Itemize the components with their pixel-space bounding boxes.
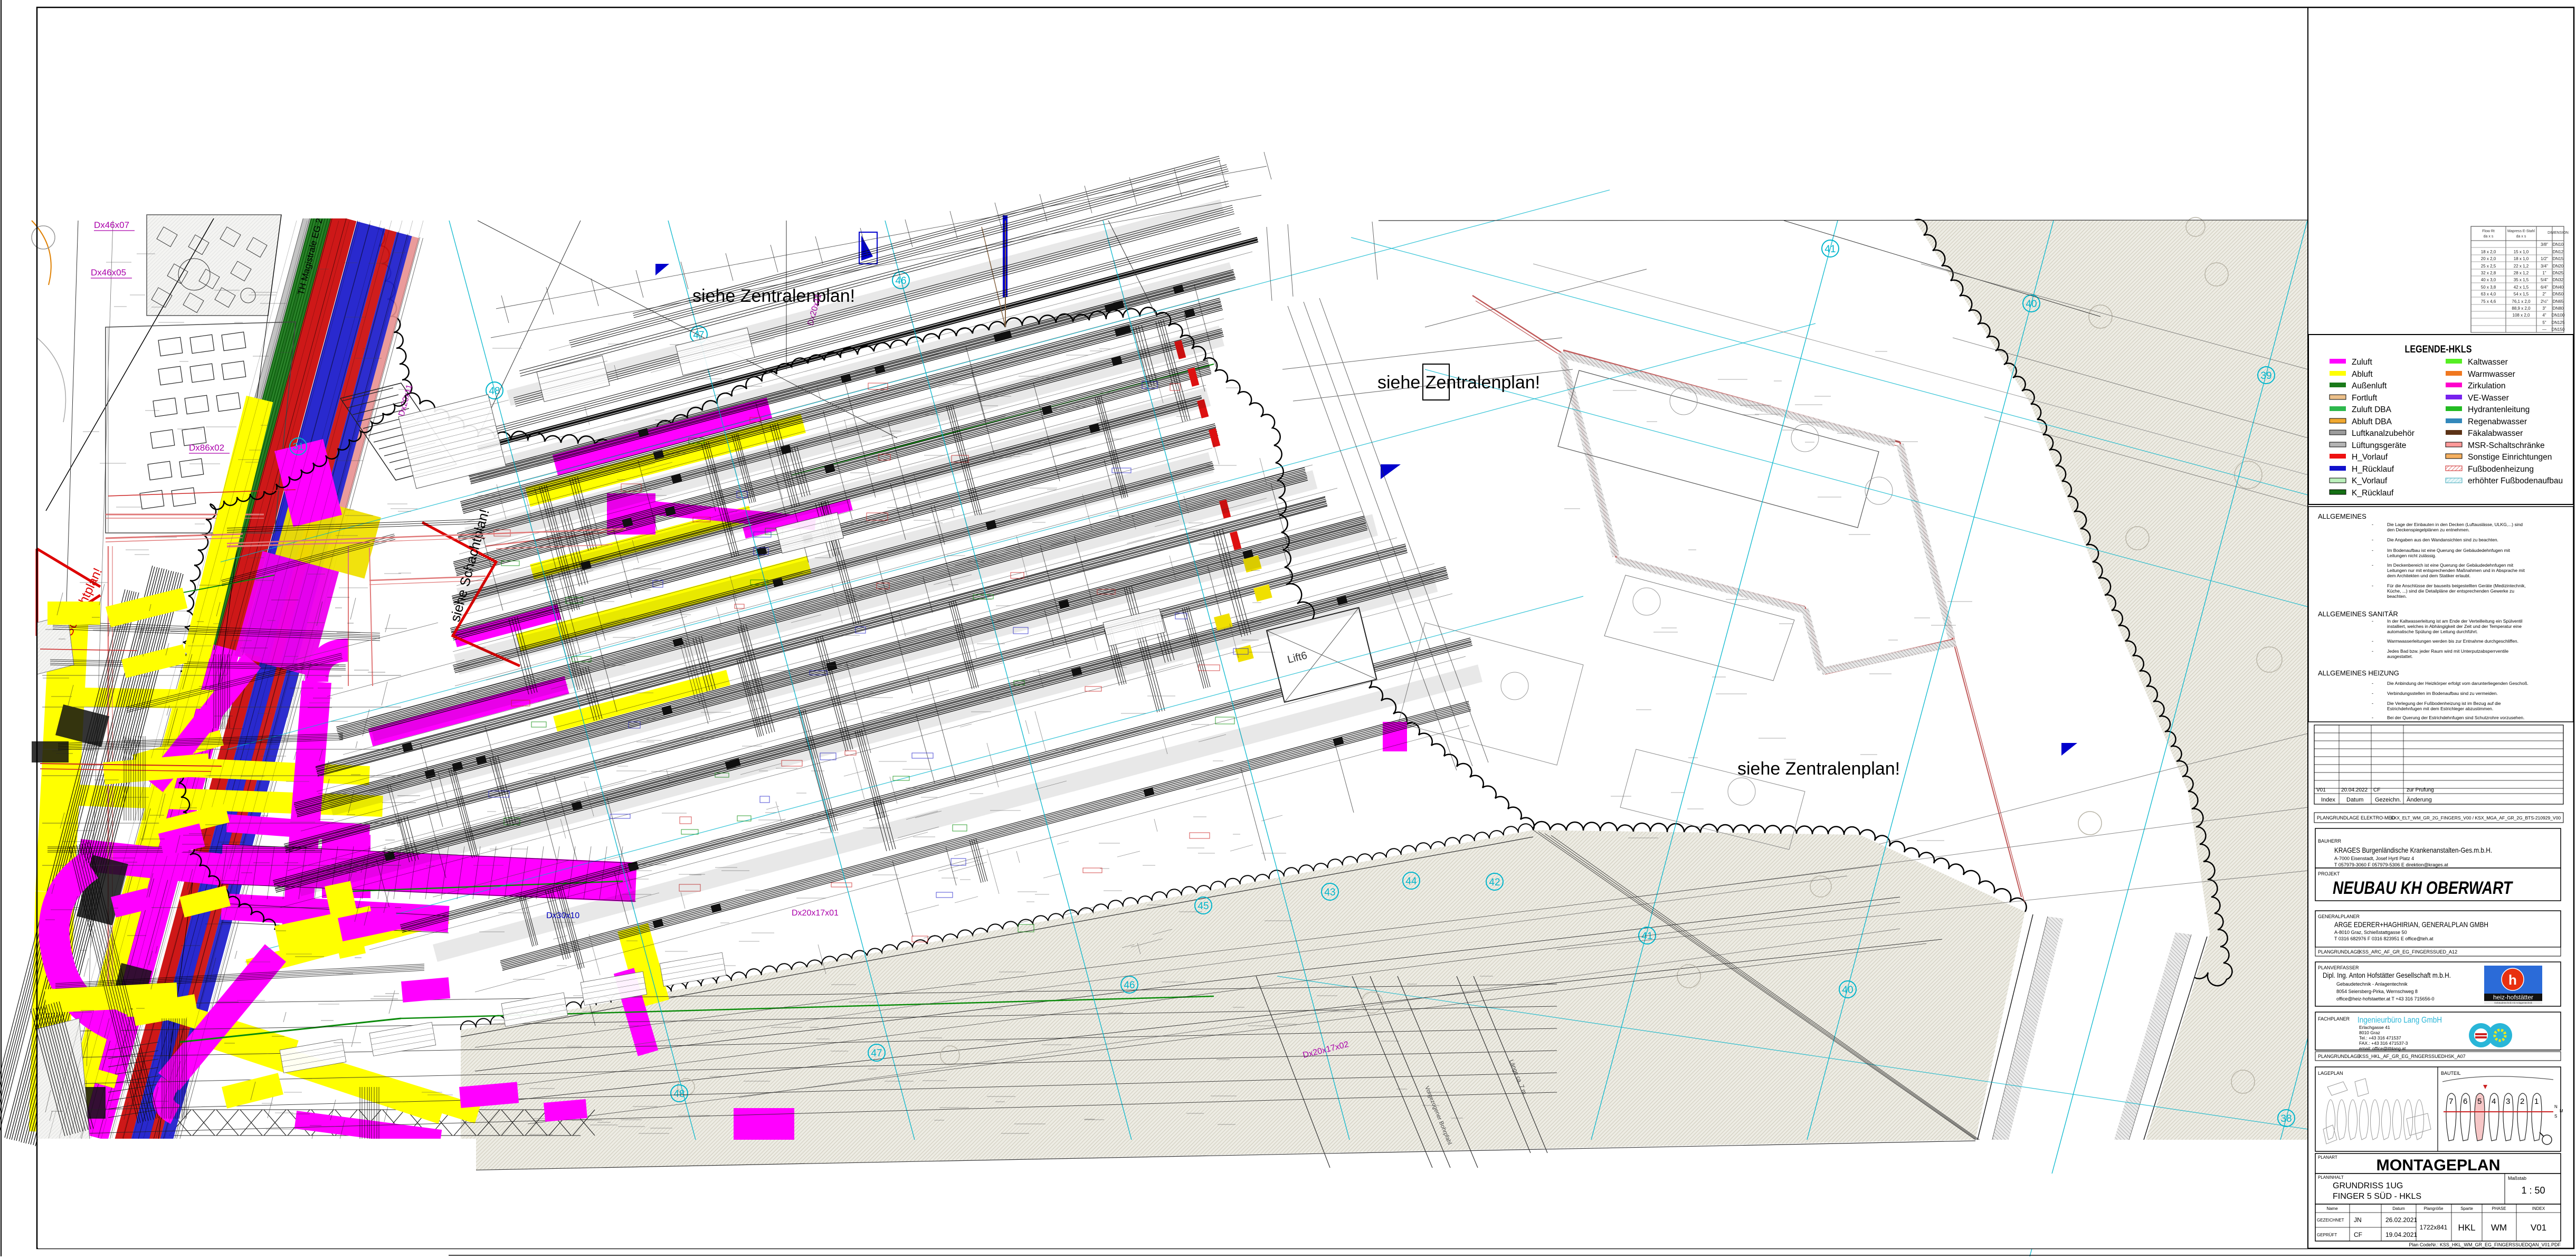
svg-text:48: 48 xyxy=(489,386,500,397)
svg-text:GENERALPLANER: GENERALPLANER xyxy=(2318,914,2360,919)
svg-text:PLANINHALT: PLANINHALT xyxy=(2318,1175,2344,1180)
svg-text:Hydrantenleitung: Hydrantenleitung xyxy=(2468,405,2530,414)
svg-text:Warmwasser: Warmwasser xyxy=(2468,370,2515,379)
svg-text:Erlachgasse: Erlachgasse 41 xyxy=(2359,1025,2390,1030)
svg-text:Fäkalabwasser: Fäkalabwasser xyxy=(2468,429,2523,438)
svg-text:KSS_HKL_AF_GR_EG_RNGERSSUEDHSK: KSS_HKL_AF_GR_EG_RNGERSSUEDHSK_A07 xyxy=(2359,1054,2466,1059)
svg-text:Datum: Datum xyxy=(2392,1206,2405,1211)
svg-text:ALLGEMEINES: ALLGEMEINES xyxy=(2318,512,2366,520)
svg-text:Kaltwasser: Kaltwasser xyxy=(2468,358,2508,367)
svg-text:47: 47 xyxy=(871,1048,882,1059)
svg-text:Fortluft: Fortluft xyxy=(2352,394,2378,403)
svg-text:-: - xyxy=(2372,701,2373,706)
svg-text:22 x 1,2: 22 x 1,2 xyxy=(2514,264,2529,269)
svg-text:ALLGEMEINES HEIZUNG: ALLGEMEINES HEIZUNG xyxy=(2318,669,2399,677)
svg-text:ausgestattet.: ausgestattet. xyxy=(2387,654,2413,659)
svg-text:KSS_ARC_AF_GR_EG_FINGERSSUED_A: KSS_ARC_AF_GR_EG_FINGERSSUED_A12 xyxy=(2359,949,2457,955)
svg-text:-: - xyxy=(2372,618,2373,624)
svg-text:-: - xyxy=(2372,537,2373,542)
svg-text:dem Architekten und dem Statik: dem Architekten und dem Statiker erlaubt… xyxy=(2387,573,2470,578)
svg-text:PROJEKT: PROJEKT xyxy=(2318,871,2340,876)
svg-text:1722x841: 1722x841 xyxy=(2420,1224,2448,1231)
svg-text:Ingenieurbüro Lang GmbH: Ingenieurbüro Lang GmbH xyxy=(2358,1016,2442,1025)
svg-text:GEPRÜFT: GEPRÜFT xyxy=(2317,1233,2337,1237)
svg-text:18 x 1,0: 18 x 1,0 xyxy=(2514,256,2529,261)
svg-text:Abluft: Abluft xyxy=(2352,370,2373,379)
svg-text:Warmwasserleitungen werden bis: Warmwasserleitungen werden bis zur Entna… xyxy=(2387,638,2518,644)
svg-text:40: 40 xyxy=(2026,299,2037,310)
svg-text:48: 48 xyxy=(673,1089,685,1100)
svg-text:JN: JN xyxy=(2354,1216,2362,1224)
svg-text:GRUNDRISS 1UG: GRUNDRISS 1UG xyxy=(2333,1181,2403,1190)
svg-text:den Deckenspiegelplänen zu ent: den Deckenspiegelplänen zu entnehmen. xyxy=(2387,527,2469,532)
svg-text:32 x 2,8: 32 x 2,8 xyxy=(2481,271,2496,275)
svg-text:3: 3 xyxy=(2506,1097,2510,1106)
svg-text:26.02.2021: 26.02.2021 xyxy=(2385,1216,2417,1224)
svg-text:3": 3" xyxy=(2542,306,2546,311)
svg-text:In der Kaltwasserleitung ist a: In der Kaltwasserleitung ist am Ende der… xyxy=(2387,618,2523,624)
svg-text:installiert, welches in Abhäng: installiert, welches in Abhängigkeit der… xyxy=(2387,624,2522,629)
svg-text:zur Prufung: zur Prufung xyxy=(2407,787,2434,793)
svg-text:40 x 3,0: 40 x 3,0 xyxy=(2481,278,2496,282)
svg-text:DN20: DN20 xyxy=(2553,264,2564,269)
svg-text:VE-Wasser: VE-Wasser xyxy=(2468,394,2509,403)
svg-text:31: 31 xyxy=(292,442,303,453)
svg-text:ALLGEMEINES SANITÄR: ALLGEMEINES SANITÄR xyxy=(2318,610,2398,618)
svg-text:25 x 2,5: 25 x 2,5 xyxy=(2481,264,2496,269)
svg-text:Maßstab: Maßstab xyxy=(2508,1176,2526,1181)
svg-text:Küche, ...) sind die Detailplä: Küche, ...) sind die Detailpläne der ent… xyxy=(2387,588,2514,594)
svg-text:Gebäudetechnik mit Anlagentech: Gebäudetechnik mit Anlagentechnik xyxy=(2494,1002,2533,1004)
svg-text:44: 44 xyxy=(1405,876,1417,887)
svg-text:50 x 3,8: 50 x 3,8 xyxy=(2481,285,2496,290)
svg-text:43: 43 xyxy=(1324,887,1335,898)
svg-text:8010: 8010 Graz xyxy=(2359,1030,2380,1035)
svg-text:LEGENDE-HKLS: LEGENDE-HKLS xyxy=(2405,344,2472,355)
svg-text:75 x 4,6: 75 x 4,6 xyxy=(2481,299,2496,304)
svg-text:INDEX: INDEX xyxy=(2532,1206,2545,1211)
svg-text:Plan CodeNr.: KSS_HKL_WM_GR_EG: Plan CodeNr.: KSS_HKL_WM_GR_EG_FINGERSSU… xyxy=(2409,1242,2561,1247)
svg-text:HKL: HKL xyxy=(2458,1223,2475,1233)
svg-text:41: 41 xyxy=(1824,244,1836,255)
svg-text:PLANGRUNDLAGE: PLANGRUNDLAGE xyxy=(2318,949,2361,955)
svg-text:18 x 2,0: 18 x 2,0 xyxy=(2481,250,2496,254)
svg-text:Luftkanalzubehör: Luftkanalzubehör xyxy=(2352,429,2415,438)
svg-text:Index: Index xyxy=(2321,797,2335,803)
svg-text:Sparte: Sparte xyxy=(2460,1206,2473,1211)
svg-text:Name: Name xyxy=(2326,1206,2338,1211)
svg-text:FAX.: +43 316 471537-3: FAX.: +43 316 471537-3 xyxy=(2359,1041,2408,1046)
svg-text:Estrichdehnfugen mit dem Estri: Estrichdehnfugen mit dem Estrichleger ab… xyxy=(2387,706,2493,711)
svg-text:Dx46x07: Dx46x07 xyxy=(94,220,129,230)
svg-text:Gebaudetechnik - Anlagentechni: Gebaudetechnik - Anlagentechnik xyxy=(2336,981,2408,987)
svg-text:da x s: da x s xyxy=(2516,235,2526,239)
svg-text:MONTAGEPLAN: MONTAGEPLAN xyxy=(2377,1157,2501,1174)
svg-text:4": 4" xyxy=(2542,313,2546,318)
svg-text:Abluft DBA: Abluft DBA xyxy=(2352,417,2392,426)
svg-text:Dipl. Ing. Anton Hofstätter Ge: Dipl. Ing. Anton Hofstätter Gesellschaft… xyxy=(2323,971,2451,979)
svg-text:-: - xyxy=(2372,522,2373,527)
svg-text:20.04.2022: 20.04.2022 xyxy=(2341,787,2368,793)
svg-text:ARGE EDERER+HAGHIRIAN, GENERAL: ARGE EDERER+HAGHIRIAN, GENERALPLAN GMBH xyxy=(2334,920,2488,929)
svg-text:CF: CF xyxy=(2373,787,2380,793)
svg-text:siehe Zentralenplan!: siehe Zentralenplan! xyxy=(1737,759,1900,779)
svg-text:45: 45 xyxy=(1197,901,1209,912)
svg-text:2: 2 xyxy=(2520,1097,2524,1106)
svg-text:5": 5" xyxy=(2542,320,2546,325)
svg-text:Verbindungsstellen im Bodenauf: Verbindungsstellen im Bodenaufbau sind z… xyxy=(2387,691,2498,696)
svg-text:Leitungen nur mit entsprechend: Leitungen nur mit entsprechenden Maßnahm… xyxy=(2387,568,2525,573)
svg-text:Jedes Bad bzw. jeder Raum wird: Jedes Bad bzw. jeder Raum wird mit Unter… xyxy=(2387,648,2508,654)
svg-text:38: 38 xyxy=(2280,1113,2292,1124)
svg-text:K_Vorlauf: K_Vorlauf xyxy=(2352,476,2388,485)
svg-text:GEZEICHNET: GEZEICHNET xyxy=(2317,1218,2344,1223)
svg-text:DN10: DN10 xyxy=(2553,242,2564,247)
svg-text:Gezeichn.: Gezeichn. xyxy=(2375,797,2401,803)
svg-text:A-8010 Graz, Schießstattgasse: A-8010 Graz, Schießstattgasse 50 xyxy=(2334,930,2407,935)
svg-text:Außenluft: Außenluft xyxy=(2352,381,2387,390)
svg-text:54 x 1,5: 54 x 1,5 xyxy=(2514,292,2529,297)
svg-text:Zuluft DBA: Zuluft DBA xyxy=(2352,405,2392,414)
svg-text:WM: WM xyxy=(2491,1223,2507,1233)
svg-text:5/4": 5/4" xyxy=(2541,278,2548,282)
svg-text:1": 1" xyxy=(2542,271,2546,275)
svg-text:4: 4 xyxy=(2492,1097,2496,1106)
svg-text:Dx46x05: Dx46x05 xyxy=(91,268,126,278)
svg-text:2": 2" xyxy=(2542,292,2546,297)
svg-text:108 x 2,0: 108 x 2,0 xyxy=(2513,313,2530,318)
svg-text:20 x 2,0: 20 x 2,0 xyxy=(2481,256,2496,261)
svg-text:BAUHERR: BAUHERR xyxy=(2318,838,2342,844)
svg-text:KRAGES Burgenländische Kranken: KRAGES Burgenländische Krankenanstalten-… xyxy=(2334,846,2492,854)
svg-text:Dx86x02: Dx86x02 xyxy=(189,443,224,453)
svg-text:Änderung: Änderung xyxy=(2407,797,2432,803)
svg-text:PLANGRUNDLAGE: PLANGRUNDLAGE xyxy=(2318,1054,2361,1059)
svg-text:H_Rücklauf: H_Rücklauf xyxy=(2352,465,2394,474)
svg-text:Die Anbindung der Heizkörper e: Die Anbindung der Heizkörper erfolgt vom… xyxy=(2387,681,2529,686)
svg-text:3/8": 3/8" xyxy=(2541,242,2548,247)
svg-text:M: M xyxy=(2560,1109,2563,1113)
svg-text:beachten.: beachten. xyxy=(2387,594,2407,599)
svg-text:-: - xyxy=(2372,548,2373,553)
svg-text:DN50: DN50 xyxy=(2553,292,2564,297)
svg-text:PHASE: PHASE xyxy=(2492,1206,2506,1211)
svg-text:28 x 1,2: 28 x 1,2 xyxy=(2514,271,2529,275)
svg-text:—: — xyxy=(2542,327,2546,332)
svg-text:PLANVERFASSER: PLANVERFASSER xyxy=(2318,965,2359,970)
svg-text:3/4": 3/4" xyxy=(2541,264,2548,269)
svg-text:Regenabwasser: Regenabwasser xyxy=(2468,417,2527,426)
svg-text:S: S xyxy=(2554,1114,2557,1119)
svg-text:-: - xyxy=(2372,715,2373,720)
svg-text:46: 46 xyxy=(1124,980,1135,991)
svg-text:-: - xyxy=(2372,648,2373,654)
svg-text:DN125: DN125 xyxy=(2552,320,2565,325)
svg-text:N: N xyxy=(2554,1104,2558,1109)
svg-text:DN80: DN80 xyxy=(2553,306,2564,311)
svg-text:email: office@itblang.at: email: office@itblang.at xyxy=(2359,1046,2406,1051)
svg-text:V01: V01 xyxy=(2531,1223,2546,1233)
svg-text:office@heiz-hofstaetter.at: office@heiz-hofstaetter.at T +43 316 715… xyxy=(2336,996,2435,1002)
svg-text:42 x 1,5: 42 x 1,5 xyxy=(2514,285,2529,290)
svg-text:39: 39 xyxy=(2260,370,2271,381)
svg-text:heiz-hofstätter: heiz-hofstätter xyxy=(2493,994,2533,1001)
svg-text:-: - xyxy=(2372,583,2373,588)
svg-text:Tel.: +43 316 471537: Tel.: +43 316 471537 xyxy=(2359,1035,2401,1041)
svg-text:MSR-Schaltschränke: MSR-Schaltschränke xyxy=(2468,441,2545,450)
svg-text:1/2": 1/2" xyxy=(2541,256,2548,261)
svg-text:-: - xyxy=(2372,562,2373,568)
svg-text:DN100: DN100 xyxy=(2552,313,2565,318)
svg-text:K_Rücklauf: K_Rücklauf xyxy=(2352,489,2394,498)
svg-text:LAGEPLAN: LAGEPLAN xyxy=(2318,1071,2343,1076)
svg-text:88,9 x 2,0: 88,9 x 2,0 xyxy=(2512,306,2531,311)
svg-text:-: - xyxy=(2372,691,2373,696)
svg-text:6/4": 6/4" xyxy=(2541,285,2548,290)
svg-text:8054 Seiersberg-Pirka, Wernsch: 8054 Seiersberg-Pirka, Wernschweg 8 xyxy=(2336,989,2418,994)
svg-text:PLANGRUNDLAGE ELEKTRO-MED: PLANGRUNDLAGE ELEKTRO-MED xyxy=(2317,815,2396,821)
svg-text:DN15: DN15 xyxy=(2553,256,2564,261)
svg-text:DN150: DN150 xyxy=(2552,327,2565,332)
svg-text:Im Deckenbereich ist eine Quer: Im Deckenbereich ist eine Querung der Ge… xyxy=(2387,562,2514,568)
svg-text:Die Lage der Einbauten in den: Die Lage der Einbauten in den Decken (Lu… xyxy=(2387,522,2523,527)
svg-text:Fußbodenheizung: Fußbodenheizung xyxy=(2468,465,2534,474)
svg-text:DN12: DN12 xyxy=(2553,250,2564,254)
svg-text:A-7000 Eisenstadt, Josef Hyrtl: A-7000 Eisenstadt, Josef Hyrtl Platz 4 xyxy=(2334,856,2414,861)
svg-text:-: - xyxy=(2372,681,2373,686)
svg-text:Plangröße: Plangröße xyxy=(2424,1206,2444,1211)
svg-text:Für die Anschlüsse der bauseit: Für die Anschlüsse der bauseits beigeste… xyxy=(2387,583,2526,588)
svg-text:Flow Rt: Flow Rt xyxy=(2482,230,2495,233)
svg-text:Im Bodenaufbau ist eine Querun: Im Bodenaufbau ist eine Querung der Gebä… xyxy=(2387,548,2511,553)
svg-text:Mapress E-Stahl: Mapress E-Stahl xyxy=(2507,230,2535,233)
svg-text:1: 1 xyxy=(2534,1097,2539,1106)
svg-text:PLANART: PLANART xyxy=(2318,1155,2337,1160)
svg-text:Datum: Datum xyxy=(2346,797,2363,803)
svg-text:DN65: DN65 xyxy=(2553,299,2564,304)
svg-text:Bei der Querung der Estrichdeh: Bei der Querung der Estrichdehnfugen sin… xyxy=(2387,715,2524,720)
svg-text:DN40: DN40 xyxy=(2553,285,2564,290)
svg-text:Sonstige Einrichtungen: Sonstige Einrichtungen xyxy=(2468,453,2552,462)
svg-text:Dx20x17x01: Dx20x17x01 xyxy=(792,909,839,918)
svg-text:automatische Spülung der Leitu: automatische Spülung der Leitung durchfü… xyxy=(2387,629,2478,634)
svg-text:DIMENSION: DIMENSION xyxy=(2548,231,2569,235)
svg-text:Lüftungsgeräte: Lüftungsgeräte xyxy=(2352,441,2406,450)
svg-text:-: - xyxy=(2372,638,2373,644)
svg-text:DN32: DN32 xyxy=(2553,278,2564,282)
svg-text:15 x 1,0: 15 x 1,0 xyxy=(2514,250,2529,254)
svg-text:DN25: DN25 xyxy=(2553,271,2564,275)
svg-text:76,1 x 2,0: 76,1 x 2,0 xyxy=(2512,299,2531,304)
svg-text:5: 5 xyxy=(2477,1097,2482,1106)
svg-text:FACHPLANER: FACHPLANER xyxy=(2318,1016,2350,1022)
svg-text:42: 42 xyxy=(1489,877,1500,888)
svg-text:40: 40 xyxy=(1842,985,1853,996)
svg-text:V01: V01 xyxy=(2316,787,2326,793)
svg-text:T 057979-3060 F 057979-530: T 057979-3060 F 057979-5306 E direktion@… xyxy=(2334,862,2448,867)
svg-text:T 0316 682976 F 0316 8239: T 0316 682976 F 0316 823951 E office@teh… xyxy=(2334,936,2434,941)
svg-text:CF: CF xyxy=(2354,1231,2362,1238)
svg-text:KXX_ELT_WM_GR_2G_FINGERS_V00 /: KXX_ELT_WM_GR_2G_FINGERS_V00 / KSX_MGA_A… xyxy=(2391,815,2561,821)
svg-text:Zuluft: Zuluft xyxy=(2352,358,2372,367)
svg-text:H_Vorlauf: H_Vorlauf xyxy=(2352,453,2388,462)
svg-text:NEUBAU KH OBERWART: NEUBAU KH OBERWART xyxy=(2333,878,2514,898)
svg-text:7: 7 xyxy=(2449,1097,2453,1106)
svg-text:Die Verlegung der Fußbodenheiz: Die Verlegung der Fußbodenheizung ist im… xyxy=(2387,701,2501,706)
svg-text:Zirkulation: Zirkulation xyxy=(2468,381,2506,390)
svg-text:h: h xyxy=(2508,972,2517,988)
svg-text:63 x 4,0: 63 x 4,0 xyxy=(2481,292,2496,297)
svg-text:Die Angaben aus den Wandansich: Die Angaben aus den Wandansichten sind z… xyxy=(2387,537,2498,542)
svg-text:erhöhter Fußbodenaufbau: erhöhter Fußbodenaufbau xyxy=(2468,476,2563,485)
svg-text:siehe Zentralenplan!: siehe Zentralenplan! xyxy=(1377,373,1540,393)
svg-text:35 x 1,5: 35 x 1,5 xyxy=(2514,278,2529,282)
svg-text:2½": 2½" xyxy=(2541,299,2548,304)
svg-text:19.04.2021: 19.04.2021 xyxy=(2385,1231,2417,1238)
svg-text:da x s: da x s xyxy=(2484,235,2494,239)
svg-text:Leitungen nicht zulässig.: Leitungen nicht zulässig. xyxy=(2387,553,2436,558)
svg-text:1 : 50: 1 : 50 xyxy=(2521,1185,2545,1196)
svg-text:6: 6 xyxy=(2463,1097,2467,1106)
svg-text:BAUTEIL: BAUTEIL xyxy=(2441,1071,2461,1076)
svg-text:FINGER 5 SÜD - HKLS: FINGER 5 SÜD - HKLS xyxy=(2333,1191,2421,1201)
